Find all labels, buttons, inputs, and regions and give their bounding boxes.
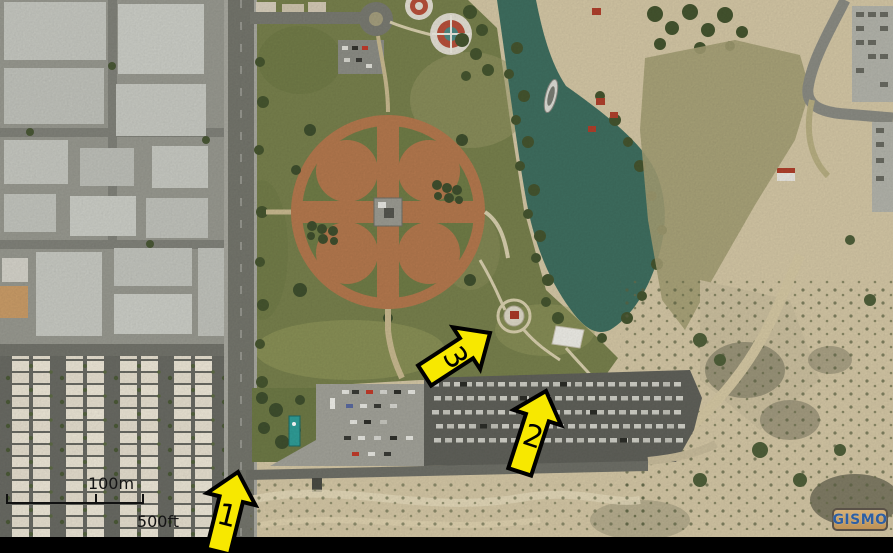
map-viewport: 100m 500ft 1 2 3 GISMO	[0, 0, 893, 553]
gismo-watermark: GISMO	[832, 508, 888, 531]
scale-metric-label: 100m	[88, 474, 134, 493]
photo-grain	[0, 0, 893, 537]
letterbox-bar	[0, 537, 893, 553]
satellite-imagery[interactable]: 100m 500ft 1 2 3	[0, 0, 893, 553]
scale-imperial-label: 500ft	[137, 512, 179, 531]
